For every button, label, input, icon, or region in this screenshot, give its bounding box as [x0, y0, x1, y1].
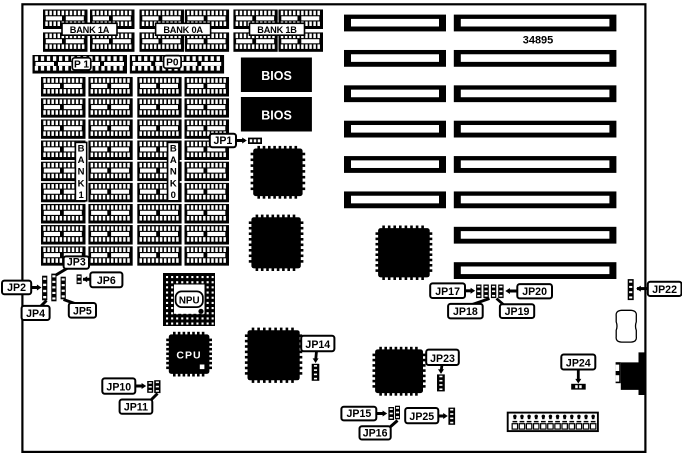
svg-text:N: N	[170, 167, 177, 178]
svg-text:1: 1	[78, 190, 84, 201]
svg-text:JP11: JP11	[124, 402, 148, 414]
svg-text:BIOS: BIOS	[261, 69, 292, 83]
svg-text:JP24: JP24	[566, 357, 591, 369]
svg-text:BANK 1B: BANK 1B	[257, 25, 297, 35]
svg-text:K: K	[170, 178, 177, 189]
svg-text:P0: P0	[166, 58, 179, 69]
svg-text:JP15: JP15	[347, 408, 372, 420]
svg-text:JP19: JP19	[505, 306, 530, 318]
svg-text:A: A	[78, 155, 85, 166]
svg-text:JP3: JP3	[67, 257, 86, 269]
svg-text:BIOS: BIOS	[261, 109, 292, 123]
svg-text:JP14: JP14	[305, 339, 330, 351]
svg-text:0: 0	[171, 190, 176, 201]
svg-text:N: N	[78, 167, 85, 178]
svg-text:JP2: JP2	[7, 282, 26, 294]
svg-text:B: B	[78, 144, 85, 155]
svg-text:JP17: JP17	[435, 286, 460, 298]
svg-text:JP1: JP1	[213, 135, 232, 147]
svg-text:JP16: JP16	[363, 427, 388, 439]
svg-text:JP20: JP20	[522, 286, 547, 298]
svg-text:34895: 34895	[523, 35, 554, 47]
svg-text:A: A	[170, 155, 177, 166]
svg-text:JP25: JP25	[409, 411, 434, 423]
svg-text:JP10: JP10	[106, 382, 131, 394]
svg-text:JP22: JP22	[652, 284, 677, 296]
svg-text:BANK 0A: BANK 0A	[163, 25, 203, 35]
svg-text:NPU: NPU	[179, 296, 200, 307]
svg-text:B: B	[170, 144, 177, 155]
svg-text:JP5: JP5	[73, 305, 92, 317]
svg-text:JP6: JP6	[97, 275, 116, 287]
svg-text:JP18: JP18	[453, 306, 478, 318]
svg-text:JP4: JP4	[26, 308, 45, 320]
svg-text:BANK 1A: BANK 1A	[70, 25, 110, 35]
svg-text:CPU: CPU	[176, 350, 201, 362]
svg-text:JP23: JP23	[430, 353, 455, 365]
svg-text:P 1: P 1	[74, 60, 89, 71]
svg-text:K: K	[78, 178, 85, 189]
